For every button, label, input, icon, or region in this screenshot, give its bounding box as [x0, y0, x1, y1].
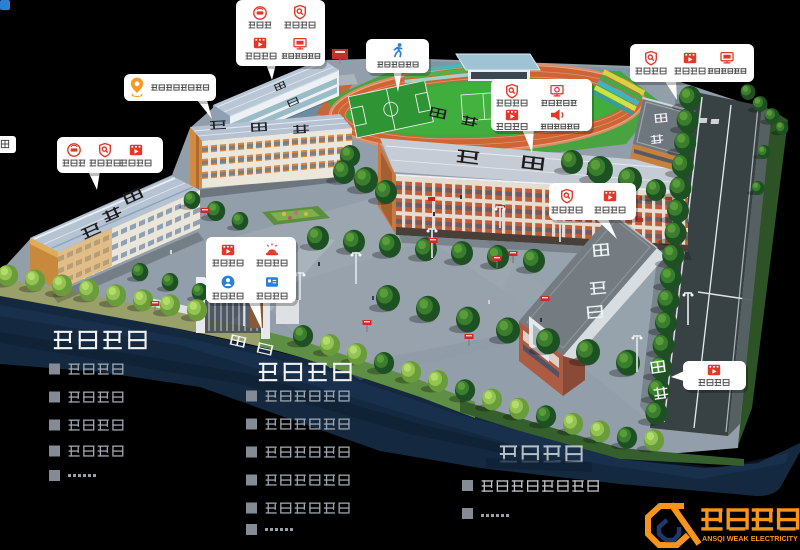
svg-text:ANSQI WEAK ELECTRICITY: ANSQI WEAK ELECTRICITY [702, 534, 798, 543]
